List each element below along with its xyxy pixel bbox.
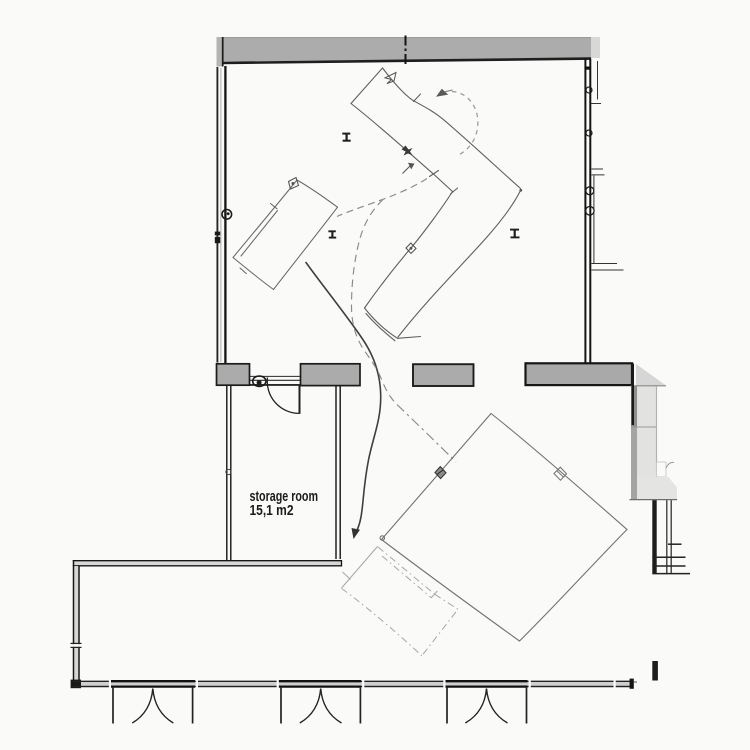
svg-text:15,1 m2: 15,1 m2 [250, 503, 294, 519]
